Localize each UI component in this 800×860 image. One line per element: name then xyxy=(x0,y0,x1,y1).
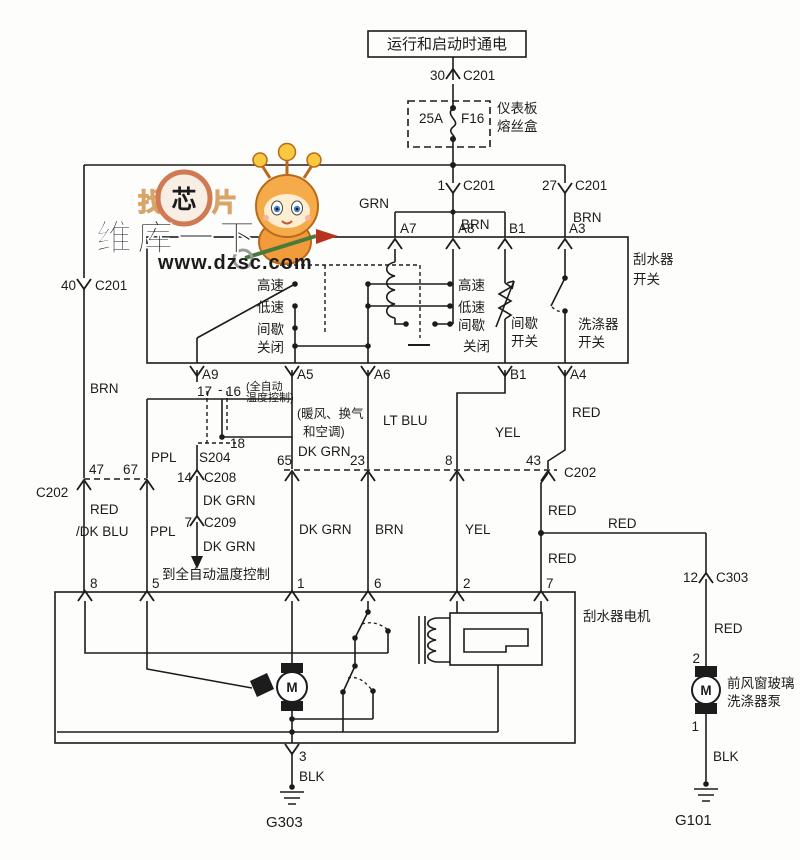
fuse-box-label-2: 熔丝盒 xyxy=(497,118,538,134)
wire-yel-lower: YEL xyxy=(465,522,491,537)
motor-pin-5: 5 xyxy=(152,576,160,591)
connector-27-c201-icon xyxy=(558,183,572,193)
conn-c201-top: C201 xyxy=(463,68,495,83)
conn-c202-left: C202 xyxy=(36,485,68,500)
ground-g101: G101 xyxy=(675,812,712,829)
hvac-note-1: (暖风、换气 xyxy=(297,406,364,421)
relay-arm-2 xyxy=(343,666,355,692)
pos-left-high: 高速 xyxy=(257,277,284,293)
watermark-logo-char-3: 片 xyxy=(212,189,237,217)
relay-arm-1 xyxy=(355,612,368,638)
wiper-motor-m: M xyxy=(286,680,297,695)
conn-c208: C208 xyxy=(204,470,236,485)
terminal-a5: A5 xyxy=(297,367,314,382)
wiper-switch-name-2: 开关 xyxy=(633,272,660,287)
hvac-note-2: 和空调) xyxy=(303,425,345,439)
wire-ltblu: LT BLU xyxy=(383,413,428,428)
wire-brn-left: BRN xyxy=(90,381,119,396)
pos-left-int: 间歇 xyxy=(257,322,284,337)
connector-40-c201-icon xyxy=(77,279,91,289)
pin-7-c209: 7 xyxy=(184,515,192,530)
washer-switch-label-2: 开关 xyxy=(578,335,605,350)
washer-pump-symbol: M xyxy=(692,666,720,714)
relay-coil xyxy=(428,618,436,662)
power-source-label: 运行和启动时通电 xyxy=(387,36,507,53)
intermittent-switch-label-1: 间歇 xyxy=(511,316,539,331)
wire-red-upper: RED xyxy=(572,405,601,420)
conn-c201-left: C201 xyxy=(95,278,127,293)
atc-note-1: (全自动 xyxy=(246,379,283,393)
conn-c209: C209 xyxy=(204,515,236,530)
pos-left-off: 关闭 xyxy=(257,340,284,355)
wire-grn: GRN xyxy=(359,196,389,211)
intermittent-switch-label-2: 开关 xyxy=(511,334,538,349)
pin-8-conn: 8 xyxy=(445,453,453,468)
atc-note-2: 温度控制) xyxy=(246,390,294,404)
motor-pin-3: 3 xyxy=(299,749,307,764)
pin-14: 14 xyxy=(177,470,193,485)
watermark-url: www.dzsc.com xyxy=(157,252,313,274)
wiper-motor-label: 刮水器电机 xyxy=(583,609,651,624)
pump-pin-2: 2 xyxy=(692,651,700,666)
pos-right-low: 低速 xyxy=(458,300,485,315)
pos-left-low: 低速 xyxy=(257,300,284,315)
wire-dkgrn-lower: DK GRN xyxy=(299,522,352,537)
pos-right-int: 间歇 xyxy=(458,318,485,333)
pump-pin-1: 1 xyxy=(691,719,699,734)
wire-blk-left: BLK xyxy=(299,769,325,784)
splice-pin-16: 16 xyxy=(226,384,241,399)
splice-name: S204 xyxy=(199,450,231,465)
terminal-a6: A6 xyxy=(374,367,391,382)
motor-pin-8: 8 xyxy=(90,576,98,591)
wire-red-low: RED xyxy=(548,551,577,566)
washer-pump-label-2: 洗涤器泵 xyxy=(727,694,781,709)
wire-red-dkblu-2: /DK BLU xyxy=(76,524,129,539)
wiper-switch-name-1: 刮水器 xyxy=(633,252,674,267)
pin-27: 27 xyxy=(542,178,557,193)
wiper-motor-box xyxy=(55,592,575,743)
washer-switch-label-1: 洗涤器 xyxy=(578,317,619,332)
washer-pump-m: M xyxy=(700,683,711,698)
washer-switch-arm xyxy=(551,278,565,306)
wire-brn-lower: BRN xyxy=(375,522,404,537)
wire-dkgrn-c209: DK GRN xyxy=(203,539,256,554)
wire-red-pump: RED xyxy=(714,621,743,636)
conn-c303: C303 xyxy=(716,570,748,585)
switch-coil xyxy=(387,262,395,318)
terminal-a4: A4 xyxy=(570,367,587,382)
washer-pump-label-1: 前风窗玻璃 xyxy=(727,675,795,691)
diagram-labels: 运行和启动时通电 30 C201 25A F16 仪表板 熔丝盒 1 C201 … xyxy=(36,36,795,831)
watermark: 找 芯 片 维库一下 www.dzsc.com xyxy=(96,144,338,275)
splice-pin-18: 18 xyxy=(230,436,245,451)
wire-blk-right: BLK xyxy=(713,749,739,764)
pin-47: 47 xyxy=(89,462,104,477)
wire-ppl-lower: PPL xyxy=(150,524,176,539)
fuse-name: F16 xyxy=(461,111,484,126)
splice-dash: - xyxy=(218,382,223,397)
motor-pin-7: 7 xyxy=(546,576,554,591)
fuse-rating: 25A xyxy=(419,111,443,126)
pin-30: 30 xyxy=(430,68,445,83)
pin-40: 40 xyxy=(61,278,76,293)
splice-pin-17: 17 xyxy=(197,384,212,399)
wire-dkgrn-c208: DK GRN xyxy=(203,493,256,508)
pin-43: 43 xyxy=(526,453,541,468)
wire-red-branch: RED xyxy=(608,516,637,531)
wire-red-mid: RED xyxy=(548,503,577,518)
terminal-a8: A8 xyxy=(458,221,475,236)
terminal-b1-top: B1 xyxy=(509,221,526,236)
fuse-box-label-1: 仪表板 xyxy=(497,101,538,116)
terminal-a7: A7 xyxy=(400,221,417,236)
connector-chevrons xyxy=(77,69,713,754)
connector-1-c201-icon xyxy=(446,183,460,193)
terminal-b1-bottom: B1 xyxy=(510,367,527,382)
pin-23: 23 xyxy=(350,453,365,468)
to-atc-label: 到全自动温度控制 xyxy=(162,566,270,582)
conn-c201-mid: C201 xyxy=(463,178,495,193)
wire-ppl-upper: PPL xyxy=(151,450,177,465)
pin-65: 65 xyxy=(277,453,292,468)
pin-1: 1 xyxy=(437,178,445,193)
wiper-circuit-diagram: M M 运行和启动时通电 30 C201 25A F16 仪表板 熔丝盒 1 C… xyxy=(0,0,800,860)
wire-red-dkblu-1: RED xyxy=(90,502,119,517)
motor-pin-1: 1 xyxy=(297,576,305,591)
pos-right-off: 关闭 xyxy=(463,339,490,354)
wire-dkgrn-upper: DK GRN xyxy=(298,444,351,459)
motor-pin-2: 2 xyxy=(463,576,471,591)
wiper-motor-symbol: M xyxy=(250,663,307,711)
terminal-a9: A9 xyxy=(202,367,219,382)
pos-right-high: 高速 xyxy=(458,277,485,293)
fuse-element xyxy=(450,108,455,139)
pin-67: 67 xyxy=(123,462,138,477)
pin-12: 12 xyxy=(683,570,698,585)
ground-g303: G303 xyxy=(266,814,303,831)
conn-c201-right: C201 xyxy=(575,178,607,193)
motor-pin-6: 6 xyxy=(374,576,382,591)
conn-c202-right: C202 xyxy=(564,465,596,480)
wiring-diagram-page: M M 运行和启动时通电 30 C201 25A F16 仪表板 熔丝盒 1 C… xyxy=(0,0,800,860)
terminal-a3: A3 xyxy=(569,221,586,236)
wire-yel-upper: YEL xyxy=(495,425,521,440)
watermark-logo-char-2: 芯 xyxy=(171,186,196,214)
